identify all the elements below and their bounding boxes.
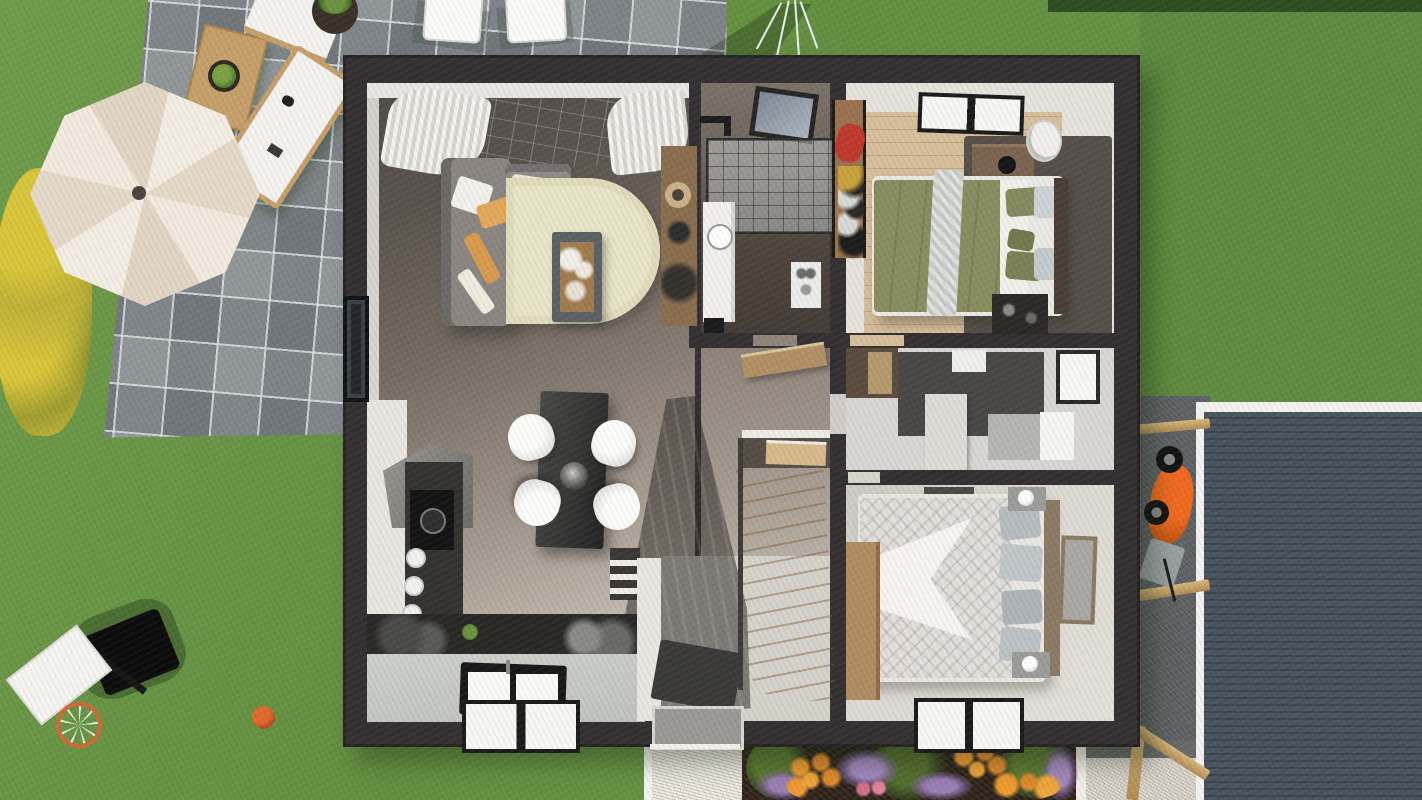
shower-room-fixture (952, 350, 986, 372)
kitchen-window (462, 700, 580, 753)
lawn-right (1140, 0, 1422, 402)
parasol-pole (132, 186, 146, 200)
bedroom1-desk (992, 294, 1048, 334)
wc-partition (925, 394, 967, 470)
door-opening (830, 394, 846, 434)
decor-basket (665, 182, 691, 208)
wooden-staircase (736, 466, 836, 704)
faucet (506, 660, 510, 674)
bed1-headboard (1054, 178, 1068, 314)
appliance (791, 262, 821, 308)
coffee-table-top (560, 242, 594, 312)
stool (406, 548, 426, 568)
shower-arm (724, 116, 731, 136)
basketball (252, 706, 275, 729)
leaning-picture-frame (1058, 535, 1097, 624)
stair-half-wall (742, 430, 830, 438)
stool (404, 576, 424, 596)
gray-vanity (988, 414, 1040, 460)
garden-floorplan-scene (0, 0, 1422, 800)
dark-mat (704, 318, 724, 333)
bedside-lamp (1022, 656, 1038, 672)
orange-flowers (780, 750, 848, 800)
bedside-lamp (1018, 490, 1034, 506)
cooking-pot (420, 508, 446, 534)
white-patio-chair (422, 0, 483, 44)
shower-room-shelf (868, 352, 892, 394)
vanity-unit (703, 202, 735, 322)
corrugated-roof (1204, 412, 1422, 800)
basketball-rim-net (56, 702, 102, 748)
gray-pillow (1001, 589, 1043, 625)
stair-shelf (766, 440, 827, 466)
path-edge (644, 742, 652, 800)
wheelbarrow-wheel (1156, 446, 1183, 473)
skylight (749, 86, 819, 144)
table-plant (212, 64, 236, 88)
sideboard (661, 146, 697, 326)
door-opening (848, 472, 880, 483)
shower-room-window (1056, 350, 1100, 404)
white-gravel-path (650, 742, 742, 800)
bedroom2-wardrobe (846, 542, 880, 700)
slatted-divider (610, 548, 640, 600)
door-threshold (650, 744, 740, 749)
hedge (1048, 0, 1422, 12)
pink-flowers (848, 778, 892, 800)
shoes (838, 166, 864, 260)
small-pillow (1006, 228, 1035, 252)
laundry-basket (1026, 120, 1062, 162)
door-opening (753, 335, 797, 346)
bedroom2-window (914, 698, 1024, 753)
rotary-clothes-dryer (800, 1, 819, 49)
inner-wall (846, 470, 1114, 485)
gray-pillow (999, 544, 1043, 583)
orange-flowers (988, 770, 1062, 800)
door-opening (850, 335, 904, 346)
washbasin (707, 224, 733, 250)
small-plant (462, 624, 478, 640)
pendant-lamp (560, 462, 588, 490)
bed2-headboard (1044, 500, 1060, 676)
white-vanity (1040, 412, 1074, 460)
black-hat (998, 156, 1016, 174)
side-window (343, 296, 369, 402)
bedroom1-window (917, 92, 1024, 136)
wheelbarrow-wheel (1144, 500, 1169, 525)
white-patio-chair (505, 0, 568, 44)
